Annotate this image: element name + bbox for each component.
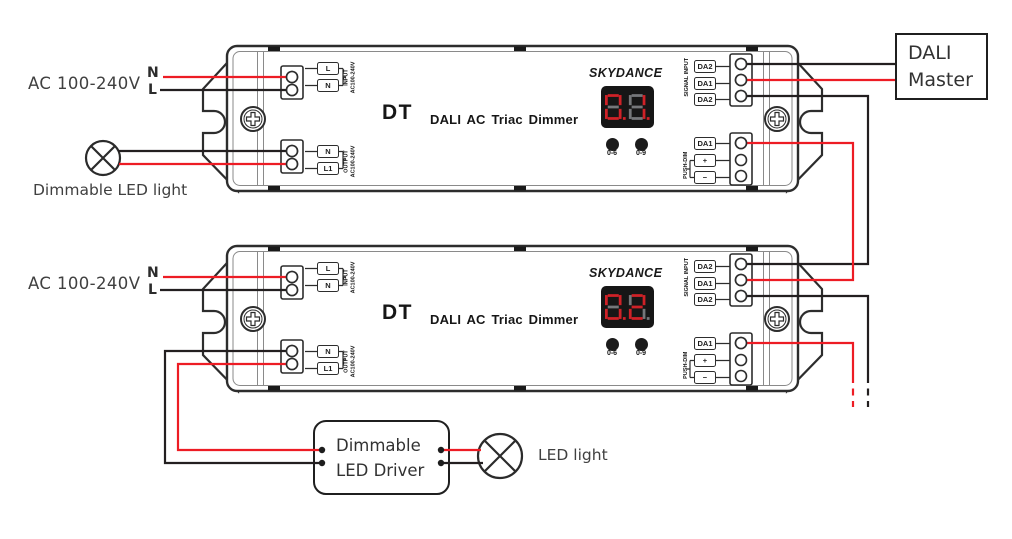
dali-master-line1: DALI — [908, 40, 986, 67]
terminal-tag-da2b-u1: DA2 — [694, 93, 716, 106]
terminal-tag-da2a-u1: DA2 — [694, 60, 716, 73]
terminal-tag-l1-u1: L1 — [317, 162, 339, 175]
led-driver-line1: Dimmable — [336, 433, 448, 458]
terminal-tag-n-out-u2: N — [317, 345, 339, 358]
terminal-tag-da1-u2: DA1 — [694, 277, 716, 290]
terminal-tag-l-u2: L — [317, 262, 339, 275]
button-tens-u1 — [606, 138, 619, 151]
button-tens-label-u2: 0-6 — [603, 350, 621, 357]
ac-supply-label-1: AC 100-240V — [28, 74, 140, 93]
terminal-tag-minus-u1: − — [694, 171, 716, 184]
screw-icon-left — [241, 107, 265, 131]
terminal-tag-plus-u2: + — [694, 354, 716, 367]
lamp-icon-led-light — [478, 434, 522, 478]
terminal-tag-da2a-u2: DA2 — [694, 260, 716, 273]
address-display-u1 — [601, 86, 654, 128]
input-rating-note-u1: INPUTAC100-240V — [344, 56, 357, 100]
dali-master-line2: Master — [908, 67, 986, 94]
terminal-tag-minus-u2: − — [694, 371, 716, 384]
screw-icon-right — [765, 107, 789, 131]
brand-logo-u2: SKYDANCE — [589, 266, 662, 280]
neutral-label-2: N — [147, 265, 159, 281]
live-label-2: L — [148, 282, 157, 298]
model-label-u2: DT — [382, 301, 413, 325]
seven-segment-digits-u1 — [605, 94, 650, 120]
button-ones-u2 — [635, 338, 648, 351]
push-dim-note-u2: PUSH-DIM — [683, 345, 690, 385]
dimmable-led-light-label: Dimmable LED light — [33, 181, 187, 199]
neutral-label-1: N — [147, 65, 159, 81]
seven-segment-digits-u2 — [605, 294, 650, 320]
led-driver-box: Dimmable LED Driver — [313, 420, 450, 495]
output-rating-note-u1: OUTPUTAC100-240V — [344, 140, 357, 184]
wiring-diagram: L N N L1 DA2 DA1 DA2 DA1 + − INPUTAC100-… — [0, 0, 1012, 539]
terminal-tag-n-out-u1: N — [317, 145, 339, 158]
button-ones-u1 — [635, 138, 648, 151]
terminal-tag-da1-pushdim-u2: DA1 — [694, 337, 716, 350]
signal-input-note-u2: SIGNAL INPUT — [684, 253, 691, 301]
dali-master-box: DALI Master — [895, 33, 988, 100]
brand-logo-u1: SKYDANCE — [589, 66, 662, 80]
terminal-tag-l1-u2: L1 — [317, 362, 339, 375]
screw-icon-right — [765, 307, 789, 331]
button-tens-u2 — [606, 338, 619, 351]
address-display-u2 — [601, 286, 654, 328]
live-label-1: L — [148, 82, 157, 98]
screw-icon-left — [241, 307, 265, 331]
terminal-tag-l-u1: L — [317, 62, 339, 75]
terminal-tag-da1-u1: DA1 — [694, 77, 716, 90]
signal-input-note-u1: SIGNAL INPUT — [684, 53, 691, 101]
button-tens-label-u1: 0-6 — [603, 150, 621, 157]
push-dim-note-u1: PUSH-DIM — [683, 145, 690, 185]
input-rating-note-u2: INPUTAC100-240V — [344, 256, 357, 300]
terminal-tag-plus-u1: + — [694, 154, 716, 167]
ac-supply-label-2: AC 100-240V — [28, 274, 140, 293]
terminal-tag-da2b-u2: DA2 — [694, 293, 716, 306]
button-ones-label-u2: 0-9 — [632, 350, 650, 357]
led-light-label: LED light — [538, 446, 608, 464]
product-name-u1: DALI AC Triac Dimmer — [430, 112, 578, 127]
terminal-tag-n-in-u2: N — [317, 279, 339, 292]
output-rating-note-u2: OUTPUTAC100-240V — [344, 340, 357, 384]
terminal-tag-da1-pushdim-u1: DA1 — [694, 137, 716, 150]
model-label-u1: DT — [382, 101, 413, 125]
product-name-u2: DALI AC Triac Dimmer — [430, 312, 578, 327]
led-driver-line2: LED Driver — [336, 458, 448, 483]
terminal-tag-n-in-u1: N — [317, 79, 339, 92]
button-ones-label-u1: 0-9 — [632, 150, 650, 157]
